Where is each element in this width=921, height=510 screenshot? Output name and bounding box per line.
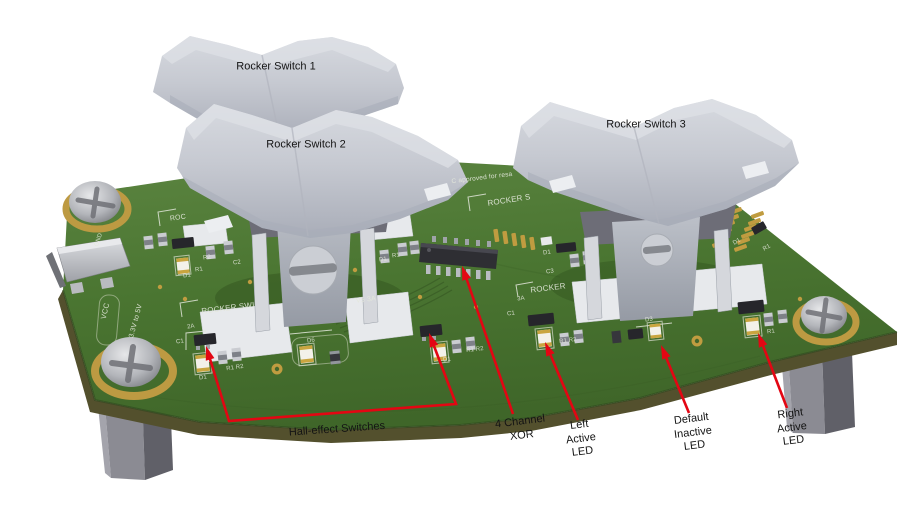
pcb-board-top — [63, 162, 897, 430]
ref-r1: R1 — [195, 266, 204, 273]
ref-d3: D3 — [645, 317, 654, 324]
ref-d1: D1 — [183, 272, 192, 279]
ref-3a: 3A — [517, 296, 525, 303]
left-active-led-label: Left Active LED — [564, 417, 599, 461]
ref-d1: D1 — [379, 256, 388, 263]
rocker-switch1-label: Rocker Switch 1 — [236, 60, 315, 74]
ref-2a: 2A — [187, 324, 195, 331]
ref-c3: C3 — [546, 269, 555, 276]
default-inactive-led-label: Default Inactive LED — [672, 411, 715, 456]
ref-d1: D1 — [443, 357, 452, 364]
ref-r2: R2 — [203, 254, 212, 261]
ref-c2: C2 — [233, 259, 242, 266]
ref-r1: R1 — [392, 252, 401, 259]
right-active-led-label: Right Active LED — [775, 406, 810, 450]
ref-c1: C1 — [507, 311, 516, 318]
ref-d6: D6 — [307, 338, 316, 345]
ref-d1: D1 — [199, 374, 208, 381]
ref-d1: D1 — [543, 250, 552, 257]
rocker-switch3-label: Rocker Switch 3 — [606, 118, 685, 132]
ref-r1: R1 — [767, 328, 776, 335]
ref-c1: C1 — [176, 338, 185, 345]
pcb-render-figure: Rocker Switch 1 Rocker Switch 2 Rocker S… — [0, 0, 921, 510]
rocker-switch2-label: Rocker Switch 2 — [266, 138, 345, 152]
screw-top-left — [66, 181, 128, 229]
